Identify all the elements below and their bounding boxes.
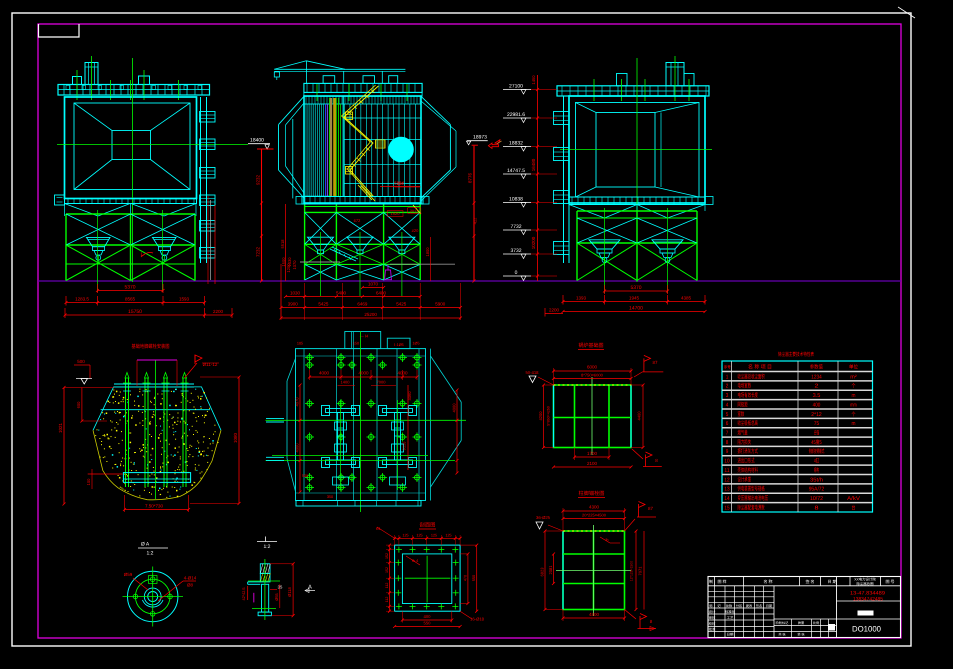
- svg-text:350: 350: [327, 495, 333, 499]
- svg-text:75: 75: [814, 421, 819, 427]
- svg-text:14: 14: [724, 496, 729, 502]
- svg-text:35t/h: 35t/h: [810, 477, 823, 483]
- svg-text:6823: 6823: [540, 567, 545, 577]
- svg-text:500: 500: [77, 359, 85, 364]
- svg-text:125: 125: [402, 534, 408, 538]
- svg-text:5518: 5518: [280, 239, 285, 249]
- svg-text:36-Ø25: 36-Ø25: [536, 515, 551, 520]
- svg-text:1393: 1393: [576, 296, 587, 301]
- svg-text:Ø59: Ø59: [124, 572, 133, 577]
- svg-text:个: 个: [852, 383, 856, 390]
- svg-text:18400: 18400: [250, 138, 264, 144]
- svg-text:25200: 25200: [364, 312, 377, 317]
- svg-text:日 期: 日 期: [827, 579, 836, 584]
- svg-text:标准化: 标准化: [725, 610, 736, 614]
- svg-text:1070: 1070: [292, 260, 297, 270]
- svg-text:批准: 批准: [709, 628, 716, 632]
- svg-text:672: 672: [354, 218, 361, 223]
- svg-text:1283.5: 1283.5: [75, 297, 89, 302]
- svg-text:8*750=6000: 8*750=6000: [581, 373, 603, 378]
- svg-text:100: 100: [86, 478, 91, 485]
- svg-text:9232: 9232: [256, 174, 261, 185]
- svg-text:mm: mm: [850, 402, 857, 408]
- svg-text:壳体结构材料: 壳体结构材料: [738, 467, 759, 474]
- svg-text:2200: 2200: [213, 309, 224, 314]
- svg-text:400: 400: [813, 402, 821, 408]
- svg-text:更改: 更改: [746, 604, 753, 608]
- svg-text:Ⅰh.4: Ⅰh.4: [412, 559, 418, 563]
- svg-text:8776: 8776: [468, 172, 473, 183]
- svg-text:1:2: 1:2: [264, 544, 271, 550]
- svg-text:L: L: [140, 252, 143, 258]
- svg-text:变压器输出电流电压: 变压器输出电流电压: [738, 495, 769, 502]
- svg-text:分区: 分区: [736, 604, 743, 608]
- svg-text:制: 制: [709, 579, 713, 584]
- svg-text:钢构: 钢构: [814, 467, 819, 474]
- svg-text:9110: 9110: [402, 441, 407, 450]
- svg-text:Ø55: Ø55: [275, 593, 279, 600]
- svg-text:7000: 7000: [377, 380, 387, 385]
- svg-text:95A/72: 95A/72: [809, 487, 825, 493]
- svg-text:m: m: [852, 393, 856, 399]
- svg-text:27100: 27100: [509, 84, 523, 90]
- svg-text:Ø118: Ø118: [287, 586, 292, 596]
- svg-text:电场有效长度: 电场有效长度: [738, 392, 759, 399]
- svg-text:4-Ø14: 4-Ø14: [184, 576, 197, 581]
- svg-text:除尘器主要技术特性表: 除尘器主要技术特性表: [778, 351, 815, 358]
- svg-text:质量: 质量: [798, 621, 805, 625]
- svg-text:1450: 1450: [531, 75, 536, 85]
- svg-text:名 称 项 目: 名 称 项 目: [748, 364, 772, 371]
- svg-text:4400: 4400: [637, 411, 642, 421]
- svg-text:5*850=4250: 5*850=4250: [547, 406, 551, 426]
- svg-text:400: 400: [424, 614, 432, 619]
- svg-text:412: 412: [473, 217, 478, 224]
- svg-text:4缸: 4缸: [814, 458, 820, 465]
- svg-text:共 张: 共 张: [778, 633, 786, 637]
- svg-text:0: 0: [515, 270, 518, 276]
- svg-text:10: 10: [724, 459, 729, 465]
- svg-text:7.50*730: 7.50*730: [145, 504, 164, 509]
- svg-text:7732: 7732: [510, 224, 521, 230]
- svg-text:125: 125: [445, 534, 451, 538]
- svg-text:6400: 6400: [376, 291, 387, 296]
- svg-text:1070: 1070: [368, 282, 379, 287]
- svg-text:2: 2: [815, 384, 819, 390]
- svg-text:1030: 1030: [290, 291, 301, 296]
- svg-text:2100: 2100: [587, 461, 598, 466]
- svg-text:台: 台: [852, 504, 856, 511]
- svg-text:剖面图: 剖面图: [420, 522, 436, 529]
- svg-text:锅炉基础图: 锅炉基础图: [579, 342, 604, 349]
- svg-text:4300: 4300: [589, 505, 600, 510]
- svg-text:1080: 1080: [233, 432, 238, 443]
- svg-text:图 号: 图 号: [885, 579, 894, 584]
- svg-text:1945: 1945: [629, 296, 640, 301]
- svg-text:600: 600: [76, 401, 81, 408]
- svg-text:6469: 6469: [357, 302, 368, 307]
- svg-text:3900: 3900: [288, 302, 299, 307]
- svg-text:1520: 1520: [391, 211, 401, 216]
- svg-text:柱脚锚栓图: 柱脚锚栓图: [579, 490, 605, 497]
- svg-text:烟气量: 烟气量: [738, 429, 748, 436]
- svg-text:470: 470: [463, 575, 467, 581]
- svg-text:4: 4: [726, 402, 729, 408]
- svg-text:4000: 4000: [452, 403, 457, 413]
- svg-text:7071: 7071: [638, 566, 643, 576]
- svg-text:42*42.5: 42*42.5: [242, 587, 246, 600]
- svg-text:1021: 1021: [58, 422, 63, 433]
- svg-text:4000: 4000: [319, 371, 330, 376]
- svg-text:105: 105: [297, 342, 303, 346]
- svg-text:9: 9: [726, 449, 729, 455]
- svg-text:5400: 5400: [336, 291, 347, 296]
- svg-text:个: 个: [852, 411, 856, 418]
- svg-text:参数值: 参数值: [810, 364, 823, 371]
- svg-text:1200: 1200: [286, 263, 291, 273]
- svg-text:550: 550: [424, 621, 432, 626]
- svg-text:3732: 3732: [510, 248, 521, 254]
- svg-text:550: 550: [472, 575, 476, 581]
- svg-text:2081: 2081: [548, 565, 553, 575]
- svg-text:50-418: 50-418: [525, 370, 539, 375]
- svg-text:150: 150: [353, 342, 359, 346]
- svg-text:名 称: 名 称: [763, 579, 772, 584]
- svg-text:13834742485: 13834742485: [853, 597, 883, 603]
- svg-text:4060: 4060: [407, 391, 412, 401]
- svg-text:112: 112: [385, 583, 389, 589]
- svg-text:A/kV: A/kV: [847, 496, 860, 502]
- svg-text:Ø A: Ø A: [141, 542, 150, 548]
- svg-text:日期: 日期: [727, 633, 734, 637]
- svg-text:7232: 7232: [256, 246, 261, 257]
- svg-text:1593: 1593: [179, 297, 190, 302]
- svg-text:1:2: 1:2: [147, 551, 154, 557]
- svg-text:18973: 18973: [473, 135, 487, 141]
- svg-text:比例: 比例: [813, 621, 819, 625]
- svg-text:设计承重: 设计承重: [738, 476, 752, 483]
- svg-text:除尘器配套电源数: 除尘器配套电源数: [738, 504, 765, 511]
- svg-text:22981.6: 22981.6: [507, 112, 525, 118]
- svg-text:除尘器总图: 除尘器总图: [857, 582, 875, 586]
- svg-text:35: 35: [278, 585, 283, 590]
- svg-text:13: 13: [724, 487, 729, 493]
- svg-text:设计: 设计: [709, 610, 716, 614]
- svg-text:1800: 1800: [425, 247, 430, 257]
- svg-text:DO1000: DO1000: [852, 625, 882, 634]
- svg-text:1700: 1700: [587, 451, 598, 456]
- svg-text:供电装置型号规格: 供电装置型号规格: [738, 486, 765, 493]
- svg-text:日期: 日期: [766, 604, 772, 608]
- svg-text:1: 1: [726, 374, 729, 380]
- svg-text:签名: 签名: [756, 604, 762, 608]
- svg-text:2*12: 2*12: [811, 412, 821, 418]
- svg-text:振打清灰方式: 振打清灰方式: [738, 448, 759, 455]
- svg-text:图 样: 图 样: [717, 579, 726, 584]
- svg-text:14747.5: 14747.5: [507, 168, 525, 174]
- svg-text:第 张: 第 张: [797, 633, 805, 637]
- svg-text:3.5: 3.5: [813, 393, 821, 399]
- svg-text:4385: 4385: [681, 296, 692, 301]
- svg-text:室数: 室数: [738, 411, 745, 418]
- svg-text:校核: 校核: [709, 622, 716, 626]
- svg-text:阶段标记: 阶段标记: [776, 621, 790, 625]
- svg-text:同极距: 同极距: [738, 401, 748, 408]
- svg-text:10838: 10838: [509, 197, 523, 203]
- svg-text:500: 500: [302, 474, 308, 478]
- svg-text:152: 152: [385, 567, 389, 573]
- svg-text:11: 11: [724, 468, 729, 474]
- svg-text:2011: 2011: [410, 208, 419, 213]
- svg-text:15: 15: [724, 505, 729, 511]
- svg-text:m: m: [852, 421, 856, 427]
- svg-text:1400: 1400: [341, 380, 351, 385]
- svg-text:#20: #20: [412, 228, 419, 233]
- svg-text:18832: 18832: [509, 141, 523, 147]
- svg-text:6000: 6000: [587, 365, 598, 370]
- svg-text:1Ø5: 1Ø5: [412, 342, 419, 346]
- svg-text:4800: 4800: [589, 612, 600, 617]
- svg-text:16480: 16480: [531, 158, 536, 171]
- svg-text:4000: 4000: [358, 371, 369, 376]
- svg-text:8565: 8565: [125, 297, 136, 302]
- svg-text:5370: 5370: [630, 285, 641, 291]
- svg-text:6: 6: [726, 421, 729, 427]
- svg-text:5425: 5425: [396, 302, 407, 307]
- svg-text:工艺: 工艺: [727, 616, 734, 620]
- svg-text:审核: 审核: [709, 616, 716, 620]
- svg-text:64: 64: [376, 527, 380, 531]
- svg-text:125: 125: [416, 534, 422, 538]
- svg-text:阻力损失: 阻力损失: [738, 439, 752, 446]
- svg-text:87: 87: [648, 506, 654, 511]
- svg-text:45度5: 45度5: [811, 439, 821, 446]
- svg-text:单位: 单位: [849, 364, 858, 371]
- svg-text:5900: 5900: [435, 302, 446, 307]
- svg-text:14700: 14700: [629, 306, 643, 312]
- svg-text:进出口形式: 进出口形式: [738, 458, 755, 465]
- svg-text:4000: 4000: [295, 443, 300, 453]
- svg-text:16-Ø18: 16-Ø18: [470, 617, 485, 622]
- svg-text:Ø8: Ø8: [187, 583, 194, 588]
- svg-text:87: 87: [652, 360, 658, 365]
- svg-text:Ⅰh: Ⅰh: [605, 538, 608, 542]
- svg-text:序号: 序号: [724, 365, 731, 370]
- svg-text:8: 8: [726, 440, 729, 446]
- svg-text:m²: m²: [850, 374, 857, 380]
- svg-text:白强: 白强: [814, 429, 819, 436]
- svg-text:Ⅰ-1Ø5: Ⅰ-1Ø5: [394, 343, 404, 347]
- svg-text:112: 112: [385, 597, 389, 603]
- svg-text:15750: 15750: [128, 309, 142, 315]
- svg-text:4200: 4200: [538, 411, 543, 421]
- svg-text:4070: 4070: [295, 397, 300, 407]
- svg-text:12*125=1500: 12*125=1500: [630, 561, 634, 581]
- svg-text:5425: 5425: [318, 302, 329, 307]
- svg-text:10/72: 10/72: [810, 496, 823, 502]
- svg-text:5: 5: [726, 412, 729, 418]
- svg-text:3: 3: [726, 393, 729, 399]
- svg-text:— Ⅰ4: — Ⅰ4: [360, 334, 369, 339]
- svg-text:侧部挠臂锤式: 侧部挠臂锤式: [809, 448, 825, 455]
- svg-text:20*225=4500: 20*225=4500: [582, 513, 607, 518]
- svg-text:5370: 5370: [124, 285, 135, 291]
- svg-text:签 名: 签 名: [805, 579, 814, 584]
- svg-text:处数: 处数: [726, 604, 733, 608]
- svg-text:7: 7: [726, 430, 729, 436]
- svg-text:152: 152: [385, 553, 389, 559]
- svg-text:基础地脚螺栓安装图: 基础地脚螺栓安装图: [132, 343, 170, 350]
- svg-text:4000: 4000: [397, 371, 408, 376]
- svg-text:收尘器总收尘面积: 收尘器总收尘面积: [738, 373, 765, 380]
- svg-text:10200: 10200: [531, 236, 536, 249]
- svg-text:204: 204: [397, 181, 404, 186]
- svg-text:2200: 2200: [549, 308, 560, 313]
- svg-text:12: 12: [724, 477, 729, 483]
- svg-text:125: 125: [431, 534, 437, 538]
- svg-text:8: 8: [815, 505, 819, 511]
- svg-text:1234: 1234: [811, 374, 821, 380]
- svg-text:电场室数: 电场室数: [738, 383, 752, 390]
- svg-text:2: 2: [726, 384, 729, 390]
- svg-text:收尘极板总高: 收尘极板总高: [738, 420, 759, 427]
